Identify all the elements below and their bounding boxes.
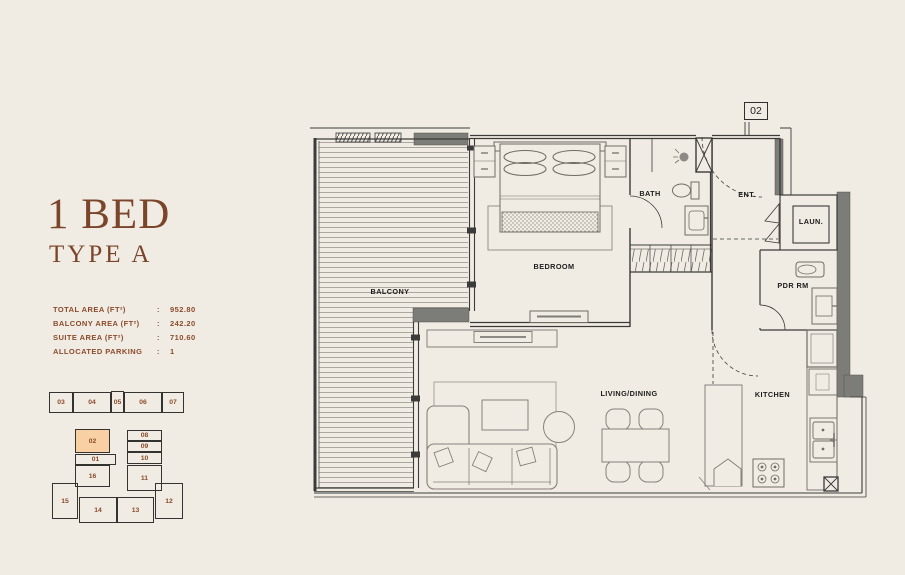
spec-value: 242.20 xyxy=(170,319,196,328)
nightstand-right xyxy=(605,146,626,177)
service-shaft-box xyxy=(824,477,838,491)
spec-label: TOTAL AREA (FT²) xyxy=(53,305,157,314)
floorplan: BALCONY BEDROOM BATH ENT. LAUN. PDR RM L… xyxy=(310,100,870,500)
keyplan-unit-14: 14 xyxy=(79,497,117,523)
room-label-kitchen: KITCHEN xyxy=(745,390,800,399)
kitchen-island xyxy=(699,385,742,490)
spec-value: 710.60 xyxy=(170,333,196,342)
nightstand-left xyxy=(474,146,495,177)
keyplan-unit-03: 03 xyxy=(49,392,73,413)
area-spec-table: TOTAL AREA (FT²):952.80 BALCONY AREA (FT… xyxy=(53,302,196,358)
tv-console xyxy=(427,330,557,347)
bedroom-tv xyxy=(530,311,588,323)
unit-title: 1 BED xyxy=(47,192,170,237)
keyplan-unit-04: 04 xyxy=(73,392,111,413)
unit-number-badge: 02 xyxy=(744,102,768,120)
keyplan-unit-06: 06 xyxy=(124,392,162,413)
spec-label: BALCONY AREA (FT²) xyxy=(53,319,157,328)
unit-subtitle: TYPE A xyxy=(49,241,152,269)
keyplan-unit-13: 13 xyxy=(117,497,154,523)
keyplan-unit-07: 07 xyxy=(162,392,184,413)
keyplan-unit-10: 10 xyxy=(127,452,162,464)
room-label-powder-room: PDR RM xyxy=(768,281,818,290)
spec-row-suite-area: SUITE AREA (FT²):710.60 xyxy=(53,330,196,344)
spec-separator: : xyxy=(157,333,170,342)
keyplan-unit-09: 09 xyxy=(127,441,162,452)
keyplan-unit-12: 12 xyxy=(155,483,183,519)
spec-row-total-area: TOTAL AREA (FT²):952.80 xyxy=(53,302,196,316)
spec-label: ALLOCATED PARKING xyxy=(53,347,157,356)
keyplan-unit-16: 16 xyxy=(75,465,110,487)
brochure-page: { "page": {"background": "#f1ece3", "acc… xyxy=(0,0,905,575)
spec-separator: : xyxy=(157,347,170,356)
spec-row-balcony-area: BALCONY AREA (FT²):242.20 xyxy=(53,316,196,330)
side-table xyxy=(544,412,575,443)
spec-value: 952.80 xyxy=(170,305,196,314)
stove xyxy=(753,459,784,487)
spec-label: SUITE AREA (FT²) xyxy=(53,333,157,342)
floorplan-drawing xyxy=(310,100,870,500)
bed xyxy=(488,142,612,250)
keyplan-unit-01: 01 xyxy=(75,454,116,465)
kitchen-counter xyxy=(807,330,837,490)
room-label-living-dining: LIVING/DINING xyxy=(584,389,674,398)
keyplan: 03 04 05 06 07 02 08 09 10 01 16 11 15 1… xyxy=(46,388,188,528)
spec-separator: : xyxy=(157,319,170,328)
dining-set xyxy=(602,409,669,482)
keyplan-unit-08: 08 xyxy=(127,430,162,441)
keyplan-unit-05: 05 xyxy=(111,391,124,413)
spec-row-parking: ALLOCATED PARKING:1 xyxy=(53,344,196,358)
room-label-balcony: BALCONY xyxy=(345,287,435,296)
room-label-laundry: LAUN. xyxy=(786,217,836,226)
room-label-bath: BATH xyxy=(626,189,674,198)
room-label-bedroom: BEDROOM xyxy=(478,262,630,271)
pdr-fixtures xyxy=(796,262,837,324)
keyplan-unit-15: 15 xyxy=(52,483,78,519)
spec-separator: : xyxy=(157,305,170,314)
spec-value: 1 xyxy=(170,347,196,356)
room-label-entrance: ENT. xyxy=(722,190,772,199)
coffee-table xyxy=(482,400,528,430)
keyplan-unit-02-highlighted: 02 xyxy=(75,429,110,453)
